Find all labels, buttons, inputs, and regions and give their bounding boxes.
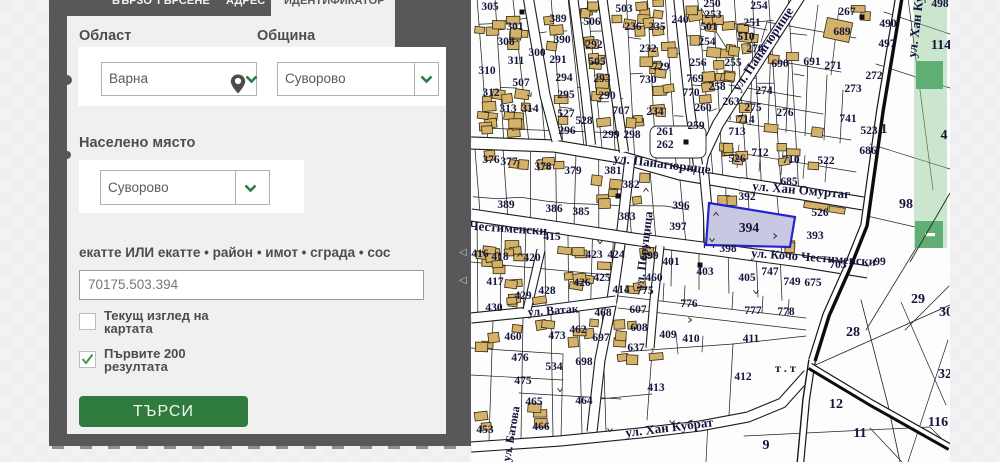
svg-text:290: 290 <box>598 90 616 102</box>
svg-text:378: 378 <box>534 161 552 173</box>
svg-text:262: 262 <box>656 139 674 151</box>
svg-text:713: 713 <box>728 126 746 138</box>
svg-text:505: 505 <box>588 56 606 68</box>
svg-text:453: 453 <box>476 424 494 436</box>
svg-text:776: 776 <box>680 298 698 310</box>
svg-text:414: 414 <box>612 284 630 296</box>
svg-text:501: 501 <box>700 21 718 33</box>
svg-text:462: 462 <box>569 324 587 336</box>
svg-text:260: 260 <box>694 102 712 114</box>
svg-text:382: 382 <box>622 179 640 191</box>
svg-text:697: 697 <box>592 332 610 344</box>
svg-text:430: 430 <box>485 302 503 314</box>
svg-text:747: 747 <box>761 266 779 278</box>
svg-text:729: 729 <box>652 61 670 73</box>
svg-text:423: 423 <box>585 249 603 261</box>
svg-text:116: 116 <box>928 415 948 430</box>
svg-text:429: 429 <box>514 290 532 302</box>
svg-text:473: 473 <box>548 330 566 342</box>
svg-text:396: 396 <box>672 200 690 212</box>
svg-text:526: 526 <box>811 207 829 219</box>
svg-text:9: 9 <box>763 438 770 453</box>
svg-text:383: 383 <box>618 211 636 223</box>
svg-text:ул. Ватак: ул. Ватак <box>527 301 579 319</box>
svg-text:11: 11 <box>853 426 866 441</box>
svg-text:28: 28 <box>846 325 860 340</box>
svg-text:234: 234 <box>646 106 664 118</box>
svg-text:276: 276 <box>776 107 794 119</box>
svg-text:251: 251 <box>743 17 761 29</box>
svg-text:311: 311 <box>508 55 525 67</box>
svg-text:777: 777 <box>744 305 762 317</box>
svg-text:420: 420 <box>523 252 541 264</box>
svg-text:381: 381 <box>604 165 622 177</box>
svg-text:398: 398 <box>719 243 737 255</box>
svg-text:730: 730 <box>639 74 657 86</box>
svg-text:710: 710 <box>782 154 800 166</box>
svg-text:389: 389 <box>549 13 567 25</box>
svg-text:376: 376 <box>482 154 500 166</box>
svg-text:426: 426 <box>573 277 591 289</box>
svg-text:698: 698 <box>575 356 593 368</box>
svg-text:255: 255 <box>724 57 742 69</box>
svg-text:254: 254 <box>698 36 716 48</box>
svg-text:32: 32 <box>938 367 950 382</box>
svg-text:523: 523 <box>860 125 878 137</box>
svg-text:254: 254 <box>750 0 768 12</box>
svg-text:498: 498 <box>931 0 949 10</box>
svg-text:401: 401 <box>662 256 680 268</box>
svg-text:465: 465 <box>525 396 543 408</box>
svg-text:263: 263 <box>722 96 740 108</box>
svg-text:690: 690 <box>771 58 789 70</box>
svg-text:236: 236 <box>624 21 642 33</box>
svg-text:4: 4 <box>941 128 948 143</box>
svg-text:769: 769 <box>686 73 704 85</box>
svg-text:707: 707 <box>612 105 630 117</box>
svg-text:ул. Хан Кубрат: ул. Хан Кубрат <box>625 414 715 440</box>
svg-text:259: 259 <box>687 120 705 132</box>
svg-text:506: 506 <box>583 16 601 28</box>
svg-text:291: 291 <box>549 54 567 66</box>
svg-text:741: 741 <box>839 113 857 125</box>
svg-text:714: 714 <box>737 114 755 126</box>
svg-text:т . т: т . т <box>775 361 796 375</box>
svg-text:389: 389 <box>497 199 515 211</box>
svg-text:468: 468 <box>594 307 612 319</box>
svg-text:313: 313 <box>499 103 517 115</box>
svg-text:534: 534 <box>545 361 563 373</box>
svg-text:267: 267 <box>838 6 856 18</box>
svg-text:490: 490 <box>879 18 897 30</box>
svg-text:261: 261 <box>656 126 674 138</box>
svg-text:424: 424 <box>607 249 625 261</box>
svg-text:522: 522 <box>817 155 835 167</box>
svg-text:274: 274 <box>755 85 773 97</box>
svg-text:507: 507 <box>512 77 530 89</box>
svg-text:314: 314 <box>521 103 539 115</box>
svg-text:271: 271 <box>824 60 842 72</box>
svg-text:607: 607 <box>629 304 647 316</box>
svg-text:526: 526 <box>728 153 746 165</box>
svg-text:298: 298 <box>623 129 641 141</box>
svg-text:ул. Батова: ул. Батова <box>499 405 523 462</box>
svg-text:12: 12 <box>829 397 843 412</box>
svg-text:385: 385 <box>572 206 590 218</box>
svg-text:308: 308 <box>497 36 515 48</box>
svg-text:528: 528 <box>575 115 593 127</box>
svg-text:608: 608 <box>630 322 648 334</box>
svg-text:394: 394 <box>739 220 760 235</box>
svg-text:689: 689 <box>833 26 851 38</box>
svg-text:413: 413 <box>647 382 665 394</box>
svg-text:377: 377 <box>500 156 518 168</box>
svg-text:464: 464 <box>575 395 593 407</box>
svg-text:770: 770 <box>682 87 700 99</box>
svg-text:293: 293 <box>593 73 611 85</box>
svg-text:460: 460 <box>504 331 522 343</box>
svg-text:497: 497 <box>878 38 896 50</box>
svg-text:637: 637 <box>627 342 645 354</box>
svg-text:232: 232 <box>639 43 657 55</box>
svg-text:235: 235 <box>648 21 666 33</box>
svg-text:299: 299 <box>602 129 620 141</box>
svg-text:527: 527 <box>557 108 575 120</box>
svg-text:418: 418 <box>491 251 509 263</box>
svg-text:294: 294 <box>555 72 573 84</box>
svg-text:312: 312 <box>482 87 500 99</box>
svg-text:386: 386 <box>545 203 563 215</box>
svg-text:379: 379 <box>564 165 582 177</box>
svg-text:410: 410 <box>682 333 700 345</box>
svg-text:295: 295 <box>557 89 575 101</box>
svg-text:412: 412 <box>734 371 752 383</box>
svg-text:305: 305 <box>481 1 499 13</box>
svg-text:258: 258 <box>708 81 726 93</box>
svg-text:30: 30 <box>939 305 950 320</box>
svg-text:405: 405 <box>738 272 756 284</box>
svg-text:256: 256 <box>689 57 707 69</box>
svg-text:476: 476 <box>511 352 529 364</box>
svg-text:393: 393 <box>806 230 824 242</box>
svg-text:272: 272 <box>865 70 883 82</box>
svg-text:409: 409 <box>659 329 677 341</box>
svg-text:428: 428 <box>538 285 556 297</box>
svg-text:749: 749 <box>783 276 801 288</box>
svg-text:712: 712 <box>751 147 769 159</box>
svg-text:686: 686 <box>859 145 877 157</box>
svg-text:475: 475 <box>514 375 532 387</box>
svg-text:403: 403 <box>696 266 714 278</box>
svg-text:98: 98 <box>899 197 913 212</box>
svg-text:503: 503 <box>615 3 633 15</box>
svg-text:778: 778 <box>777 306 795 318</box>
svg-text:296: 296 <box>558 125 576 137</box>
svg-text:310: 310 <box>478 65 496 77</box>
svg-text:691: 691 <box>803 56 821 68</box>
svg-text:114: 114 <box>931 38 950 53</box>
svg-text:675: 675 <box>804 277 822 289</box>
svg-text:301: 301 <box>506 21 524 33</box>
svg-text:425: 425 <box>593 272 611 284</box>
svg-text:510: 510 <box>737 31 755 43</box>
svg-text:466: 466 <box>532 421 550 433</box>
svg-text:29: 29 <box>911 292 925 307</box>
svg-text:253: 253 <box>704 9 722 21</box>
svg-text:1: 1 <box>881 122 888 137</box>
svg-text:397: 397 <box>669 221 687 233</box>
svg-text:300: 300 <box>528 47 546 59</box>
svg-text:416: 416 <box>471 248 489 260</box>
svg-text:273: 273 <box>844 83 862 95</box>
svg-text:390: 390 <box>553 34 571 46</box>
svg-text:275: 275 <box>744 102 762 114</box>
svg-text:292: 292 <box>585 39 603 51</box>
svg-text:240: 240 <box>671 14 689 26</box>
svg-text:411: 411 <box>743 333 760 345</box>
svg-text:417: 417 <box>486 276 504 288</box>
